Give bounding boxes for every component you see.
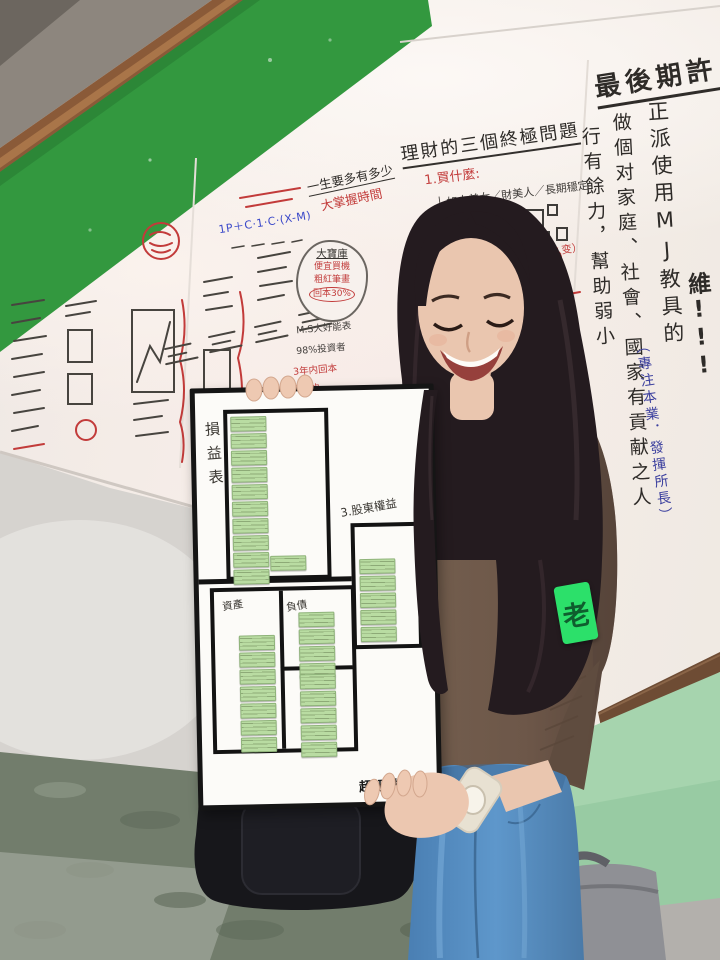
sticky-note <box>233 552 269 568</box>
sticky-note <box>232 484 268 500</box>
sticky-note <box>231 450 267 466</box>
balance-sheet-box: 資產 負債 <box>210 585 358 754</box>
sticky-note <box>299 646 335 662</box>
sticky-note <box>240 703 276 719</box>
sticky-note <box>240 669 276 685</box>
sticky-note <box>360 592 396 608</box>
held-whiteboard: 損益表 3.股東權益 資產 負債 超級數字力 <box>190 383 443 810</box>
sticky-note <box>361 626 397 642</box>
sticky-note <box>301 742 337 758</box>
sticky-note <box>299 629 335 645</box>
sticky-note <box>230 416 266 432</box>
sticky-note <box>300 708 336 724</box>
sticky-note <box>241 720 277 736</box>
income-foot-note <box>270 555 306 573</box>
sticky-note <box>233 569 269 585</box>
assets-notes <box>239 635 277 755</box>
photo-scene: 最後期許 正派使用MJ教具的 做個对家庭、社會、國家有貢献之人 行有餘力，幫助弱… <box>0 0 720 960</box>
sticky-note <box>239 652 275 668</box>
sticky-note <box>239 635 275 651</box>
liabilities-notes <box>298 612 335 681</box>
sticky-note <box>298 612 334 628</box>
income-notes <box>230 416 270 587</box>
sticky-note <box>240 686 276 702</box>
sticky-note <box>360 609 396 625</box>
equity-lower-notes <box>300 674 338 760</box>
equity-box <box>350 522 423 649</box>
sticky-note <box>301 725 337 741</box>
sticky-note <box>360 575 396 591</box>
sticky-note <box>300 674 336 690</box>
sticky-note <box>232 518 268 534</box>
sticky-note <box>232 501 268 517</box>
sticky-note <box>233 535 269 551</box>
sticky-note <box>300 691 336 707</box>
sticky-note <box>241 737 277 753</box>
income-statement-box <box>223 408 332 581</box>
equity-label: 3.股東權益 <box>339 495 398 521</box>
sticky-note <box>359 558 395 574</box>
sticky-note <box>270 555 306 571</box>
armband-character: 老 <box>559 591 592 634</box>
equity-notes <box>359 558 397 644</box>
sticky-note <box>231 433 267 449</box>
assets-label: 資產 <box>221 596 244 614</box>
board-logo: 超級數字力 <box>358 772 429 795</box>
sticky-note <box>231 467 267 483</box>
